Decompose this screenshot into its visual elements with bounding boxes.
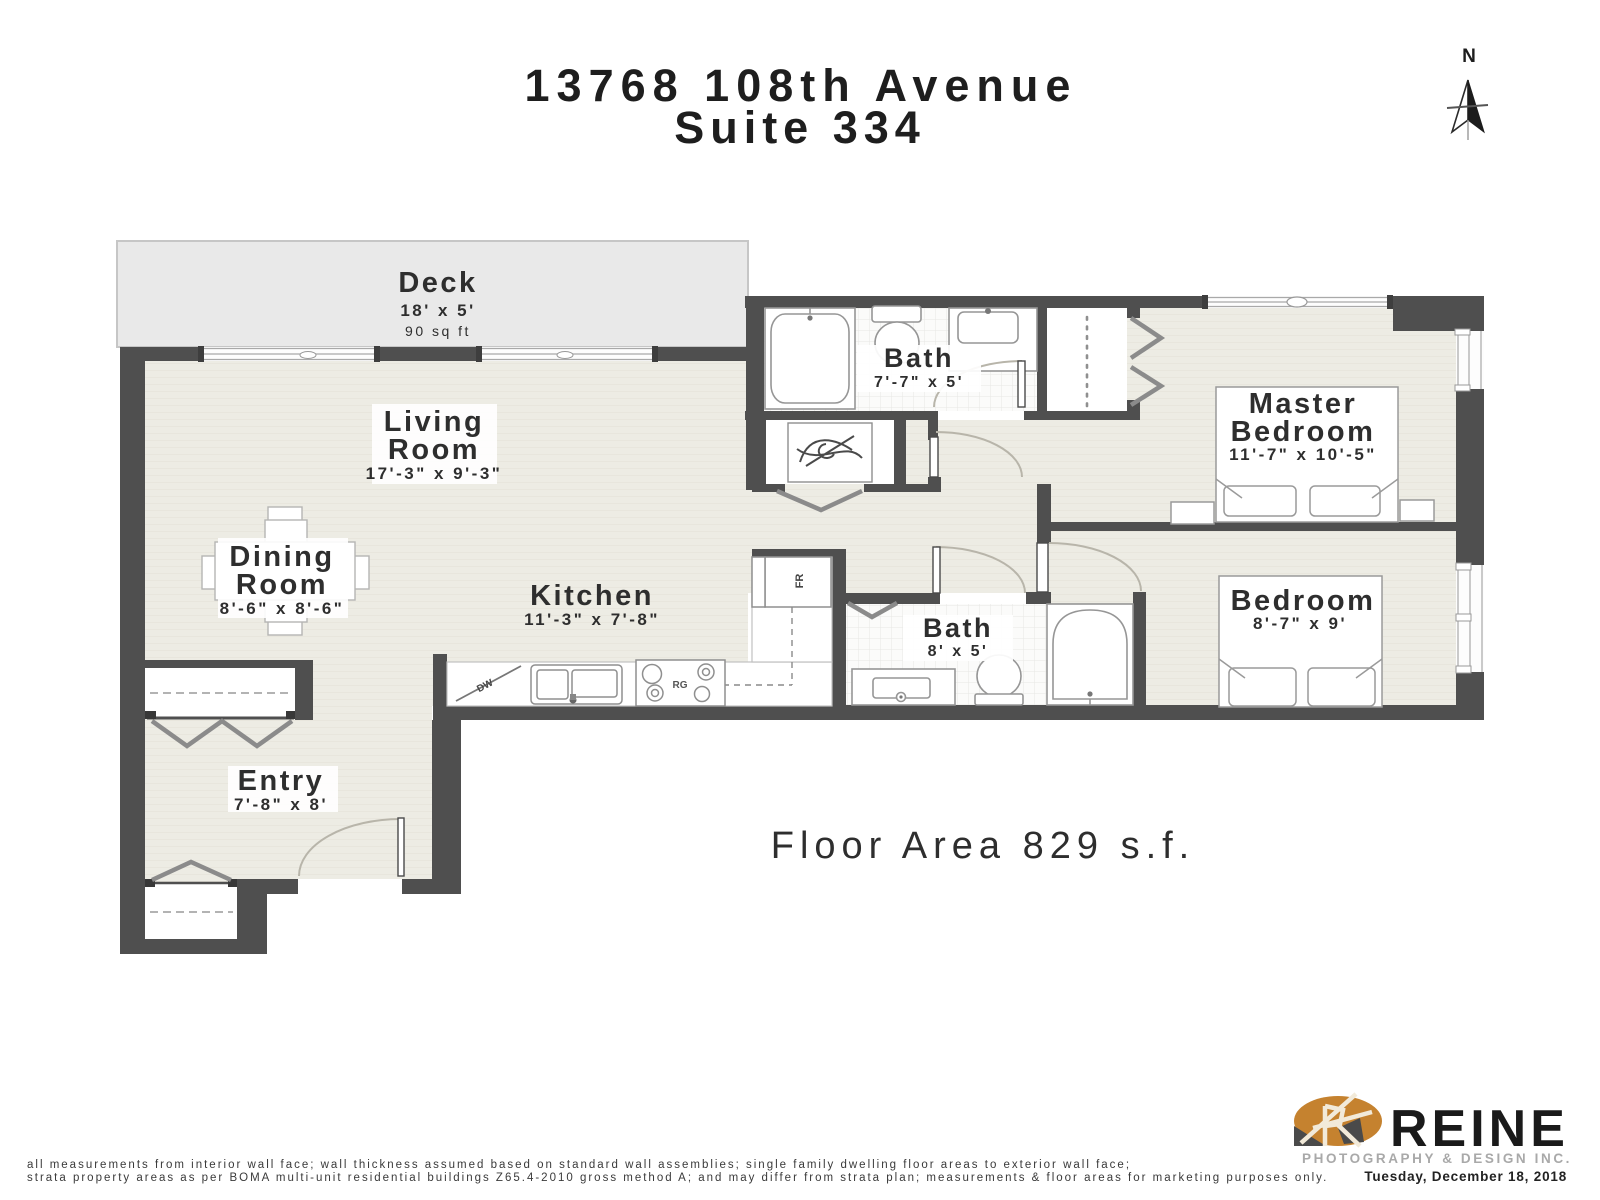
svg-text:RG: RG bbox=[673, 680, 688, 691]
svg-text:90 sq ft: 90 sq ft bbox=[405, 323, 471, 339]
svg-text:REINE: REINE bbox=[1390, 1100, 1569, 1158]
svg-text:Suite 334: Suite 334 bbox=[674, 102, 926, 153]
svg-text:PHOTOGRAPHY & DESIGN INC.: PHOTOGRAPHY & DESIGN INC. bbox=[1302, 1151, 1572, 1166]
svg-text:Tuesday, December 18, 2018: Tuesday, December 18, 2018 bbox=[1364, 1169, 1567, 1184]
svg-text:all measurements from interior: all measurements from interior wall face… bbox=[27, 1159, 1131, 1171]
svg-text:17'-3" x 9'-3": 17'-3" x 9'-3" bbox=[366, 464, 503, 483]
svg-text:strata property areas as per B: strata property areas as per BOMA multi-… bbox=[27, 1172, 1328, 1184]
svg-text:Deck: Deck bbox=[398, 267, 477, 299]
svg-text:Bedroom: Bedroom bbox=[1231, 416, 1376, 448]
svg-text:Bath: Bath bbox=[923, 613, 993, 643]
svg-text:FR: FR bbox=[794, 574, 806, 589]
svg-text:7'-7" x 5': 7'-7" x 5' bbox=[874, 374, 964, 391]
svg-text:Bedroom: Bedroom bbox=[1231, 585, 1376, 617]
svg-text:Entry: Entry bbox=[238, 765, 325, 797]
svg-text:8'-6" x 8'-6": 8'-6" x 8'-6" bbox=[220, 599, 345, 618]
svg-text:N: N bbox=[1462, 46, 1476, 67]
svg-text:Room: Room bbox=[236, 569, 328, 601]
svg-text:8'-7" x 9': 8'-7" x 9' bbox=[1253, 614, 1347, 633]
svg-text:Bath: Bath bbox=[884, 343, 954, 373]
svg-text:Kitchen: Kitchen bbox=[530, 580, 654, 612]
svg-text:Room: Room bbox=[388, 434, 480, 466]
svg-text:11'-3" x 7'-8": 11'-3" x 7'-8" bbox=[524, 610, 660, 629]
svg-text:11'-7" x 10'-5": 11'-7" x 10'-5" bbox=[1229, 445, 1377, 464]
svg-text:7'-8" x 8': 7'-8" x 8' bbox=[234, 795, 328, 814]
svg-text:Floor Area 829 s.f.: Floor Area 829 s.f. bbox=[771, 825, 1196, 867]
svg-text:18' x 5': 18' x 5' bbox=[400, 301, 475, 320]
svg-text:8' x 5': 8' x 5' bbox=[928, 643, 989, 660]
